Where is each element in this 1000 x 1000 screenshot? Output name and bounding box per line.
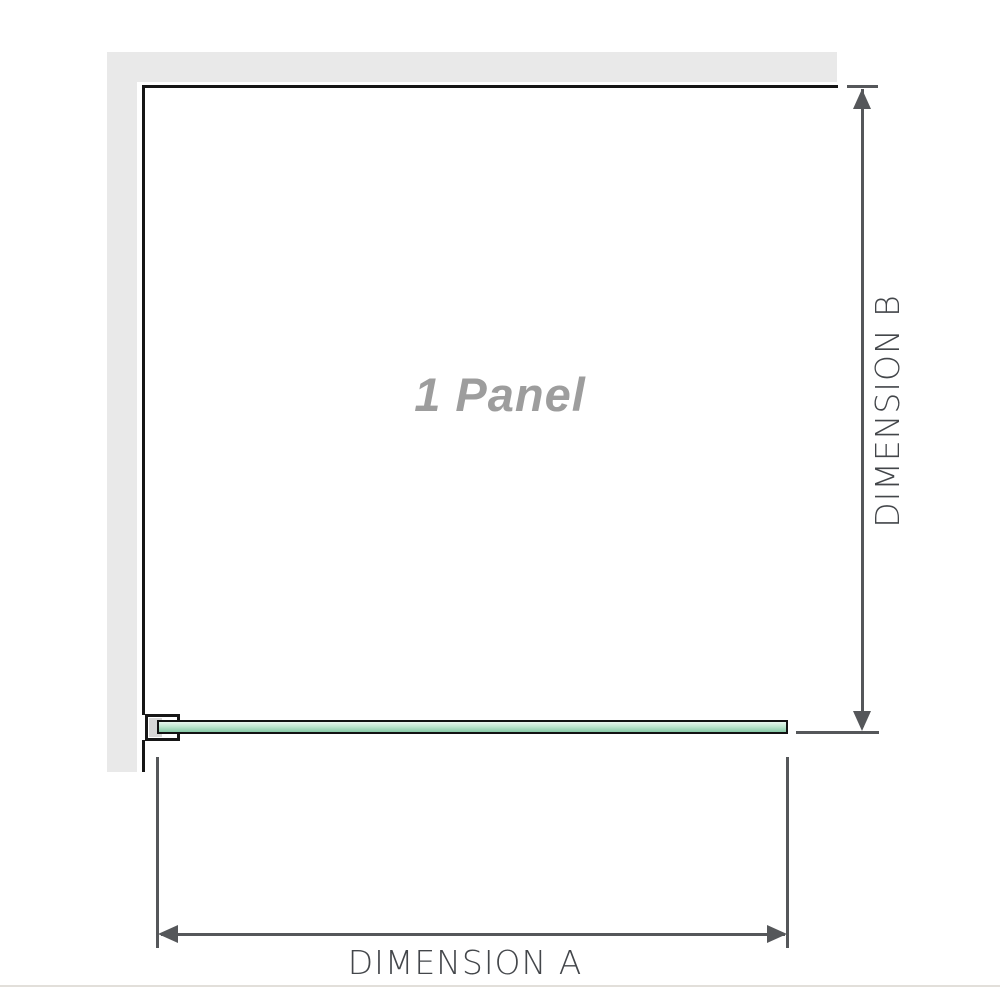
dim-b-line xyxy=(861,89,864,727)
panel-outline-top xyxy=(143,85,838,88)
dim-a-line xyxy=(161,933,785,936)
panel-outline-left-upper xyxy=(142,85,145,715)
panel-outline-left-lower xyxy=(142,740,145,772)
shower-panel-dimension-diagram: 1 Panel DIMENSION B DIMENSION A xyxy=(0,0,1000,1000)
dimension-a-label: DIMENSION A xyxy=(345,940,585,984)
dim-b-arrow-up-icon xyxy=(853,89,871,109)
image-bottom-edge xyxy=(0,985,1000,987)
wall-left-strip xyxy=(107,52,137,772)
dimension-b-label: DIMENSION B xyxy=(865,291,909,531)
dim-a-extension-left xyxy=(156,757,159,948)
dim-a-extension-right xyxy=(786,757,789,948)
panel-count-label: 1 Panel xyxy=(360,362,640,426)
dim-a-arrow-right-icon xyxy=(767,925,787,943)
wall-top-strip xyxy=(107,52,837,82)
dim-b-arrow-down-icon xyxy=(853,711,871,731)
dim-a-arrow-left-icon xyxy=(158,925,178,943)
dim-b-tick-bottom xyxy=(796,731,879,734)
glass-panel-bar xyxy=(157,720,788,734)
dim-b-tick-top xyxy=(847,85,878,88)
